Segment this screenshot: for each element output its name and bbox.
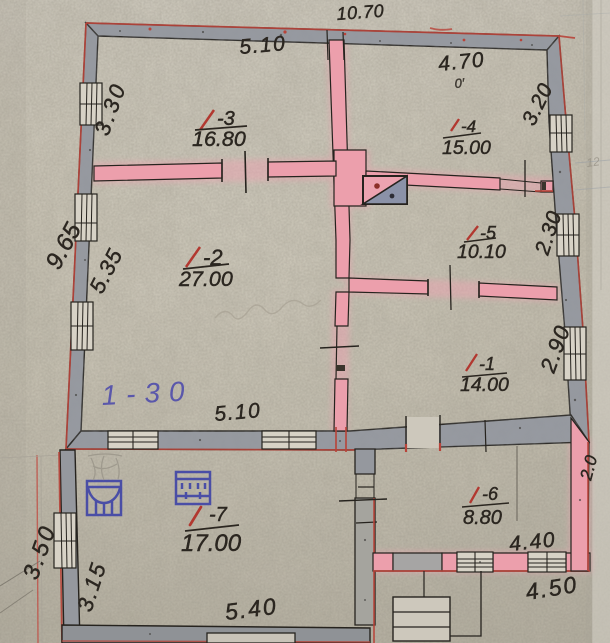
svg-text:-6: -6 <box>482 484 499 504</box>
svg-text:8.80: 8.80 <box>463 507 502 529</box>
svg-text:17.00: 17.00 <box>181 530 242 557</box>
svg-text:15.00: 15.00 <box>442 137 491 159</box>
svg-text:16.80: 16.80 <box>192 127 246 151</box>
svg-text:5.10: 5.10 <box>213 399 262 426</box>
svg-text:10.10: 10.10 <box>457 241 506 263</box>
svg-text:1-30: 1-30 <box>101 375 195 411</box>
svg-text:12: 12 <box>585 154 600 170</box>
svg-text:0′: 0′ <box>454 75 465 91</box>
svg-text:4.70: 4.70 <box>437 48 486 76</box>
svg-text:10.70: 10.70 <box>336 1 385 24</box>
svg-text:-7: -7 <box>209 504 228 526</box>
svg-text:14.00: 14.00 <box>460 374 509 396</box>
svg-text:4.40: 4.40 <box>508 528 557 556</box>
svg-text:-1: -1 <box>479 354 495 374</box>
svg-text:27.00: 27.00 <box>178 267 233 291</box>
svg-text:5.10: 5.10 <box>238 32 287 59</box>
